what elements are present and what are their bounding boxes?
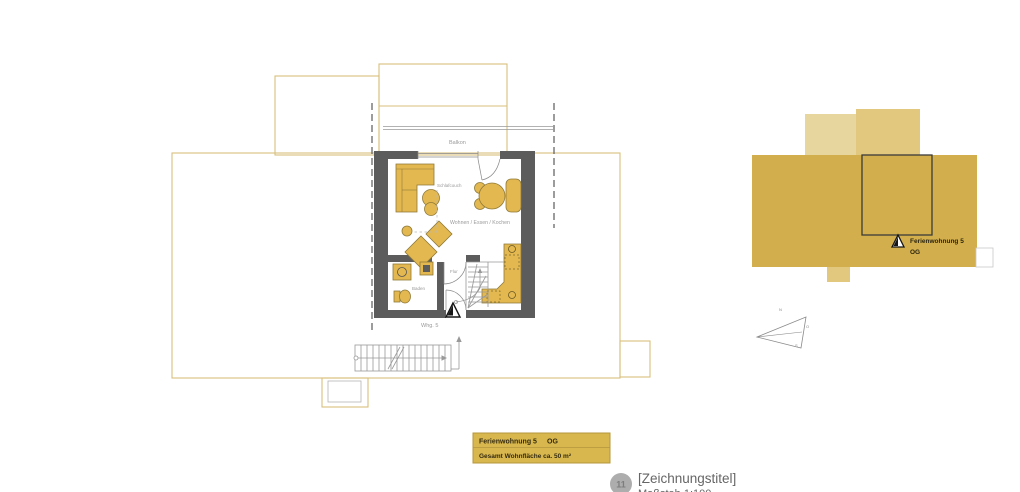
title-block: Ferienwohnung 5 OG Gesamt Wohnfläche ca.…	[473, 433, 610, 463]
drawing-scale: Maßstab 1:100	[638, 488, 711, 492]
site-building-main	[752, 155, 977, 267]
sheet-number: 11	[616, 480, 626, 490]
site-notch	[976, 248, 993, 267]
north-arrow-icon: N O S	[757, 307, 809, 348]
entrance-door	[446, 290, 466, 310]
site-building-pale-left	[805, 114, 857, 155]
drawing-title: [Zeichnungstitel]	[638, 471, 736, 486]
wohnen-label: Wohnen / Essen / Kochen	[450, 220, 510, 226]
external-stair	[354, 336, 462, 371]
site-plan: Ferienwohnung 5 OG	[752, 109, 993, 282]
title-block-unit: Ferienwohnung 5	[479, 439, 537, 446]
balcony: Balkon	[383, 127, 553, 147]
site-building-annex	[827, 267, 850, 282]
armchair-small	[426, 221, 452, 247]
flur-label: Flur	[450, 269, 458, 274]
building-outline	[172, 64, 650, 407]
whg-label: Whg. 5	[421, 323, 438, 329]
site-unit-label: Ferienwohnung 5	[910, 238, 964, 245]
stool	[402, 226, 412, 236]
compass-bottom-label: S	[795, 343, 798, 348]
balcony-label: Balkon	[449, 140, 466, 146]
dining-group	[475, 179, 522, 212]
title-block-floor: OG	[547, 439, 558, 446]
drawing-sheet: Balkon	[0, 0, 1020, 492]
compass-top-label: N	[779, 307, 782, 312]
title-block-area: Gesamt Wohnfläche ca. 50 m²	[479, 453, 572, 460]
entrance-marker-icon	[446, 303, 460, 317]
floor-plan-canvas: Balkon	[0, 0, 1020, 492]
bath-fixtures	[393, 262, 433, 303]
compass-right-label: O	[806, 324, 809, 329]
footer: 11 [Zeichnungstitel] Maßstab 1:100	[610, 471, 736, 492]
basement-window-box	[328, 381, 361, 402]
schlafcouch-label: Schlafcouch	[437, 183, 462, 188]
baden-label: Baden	[412, 286, 426, 291]
site-floor-label: OG	[910, 249, 920, 256]
coffee-table-lower	[425, 203, 438, 216]
balcony-door	[478, 159, 500, 180]
site-building-pale-right	[856, 109, 920, 155]
